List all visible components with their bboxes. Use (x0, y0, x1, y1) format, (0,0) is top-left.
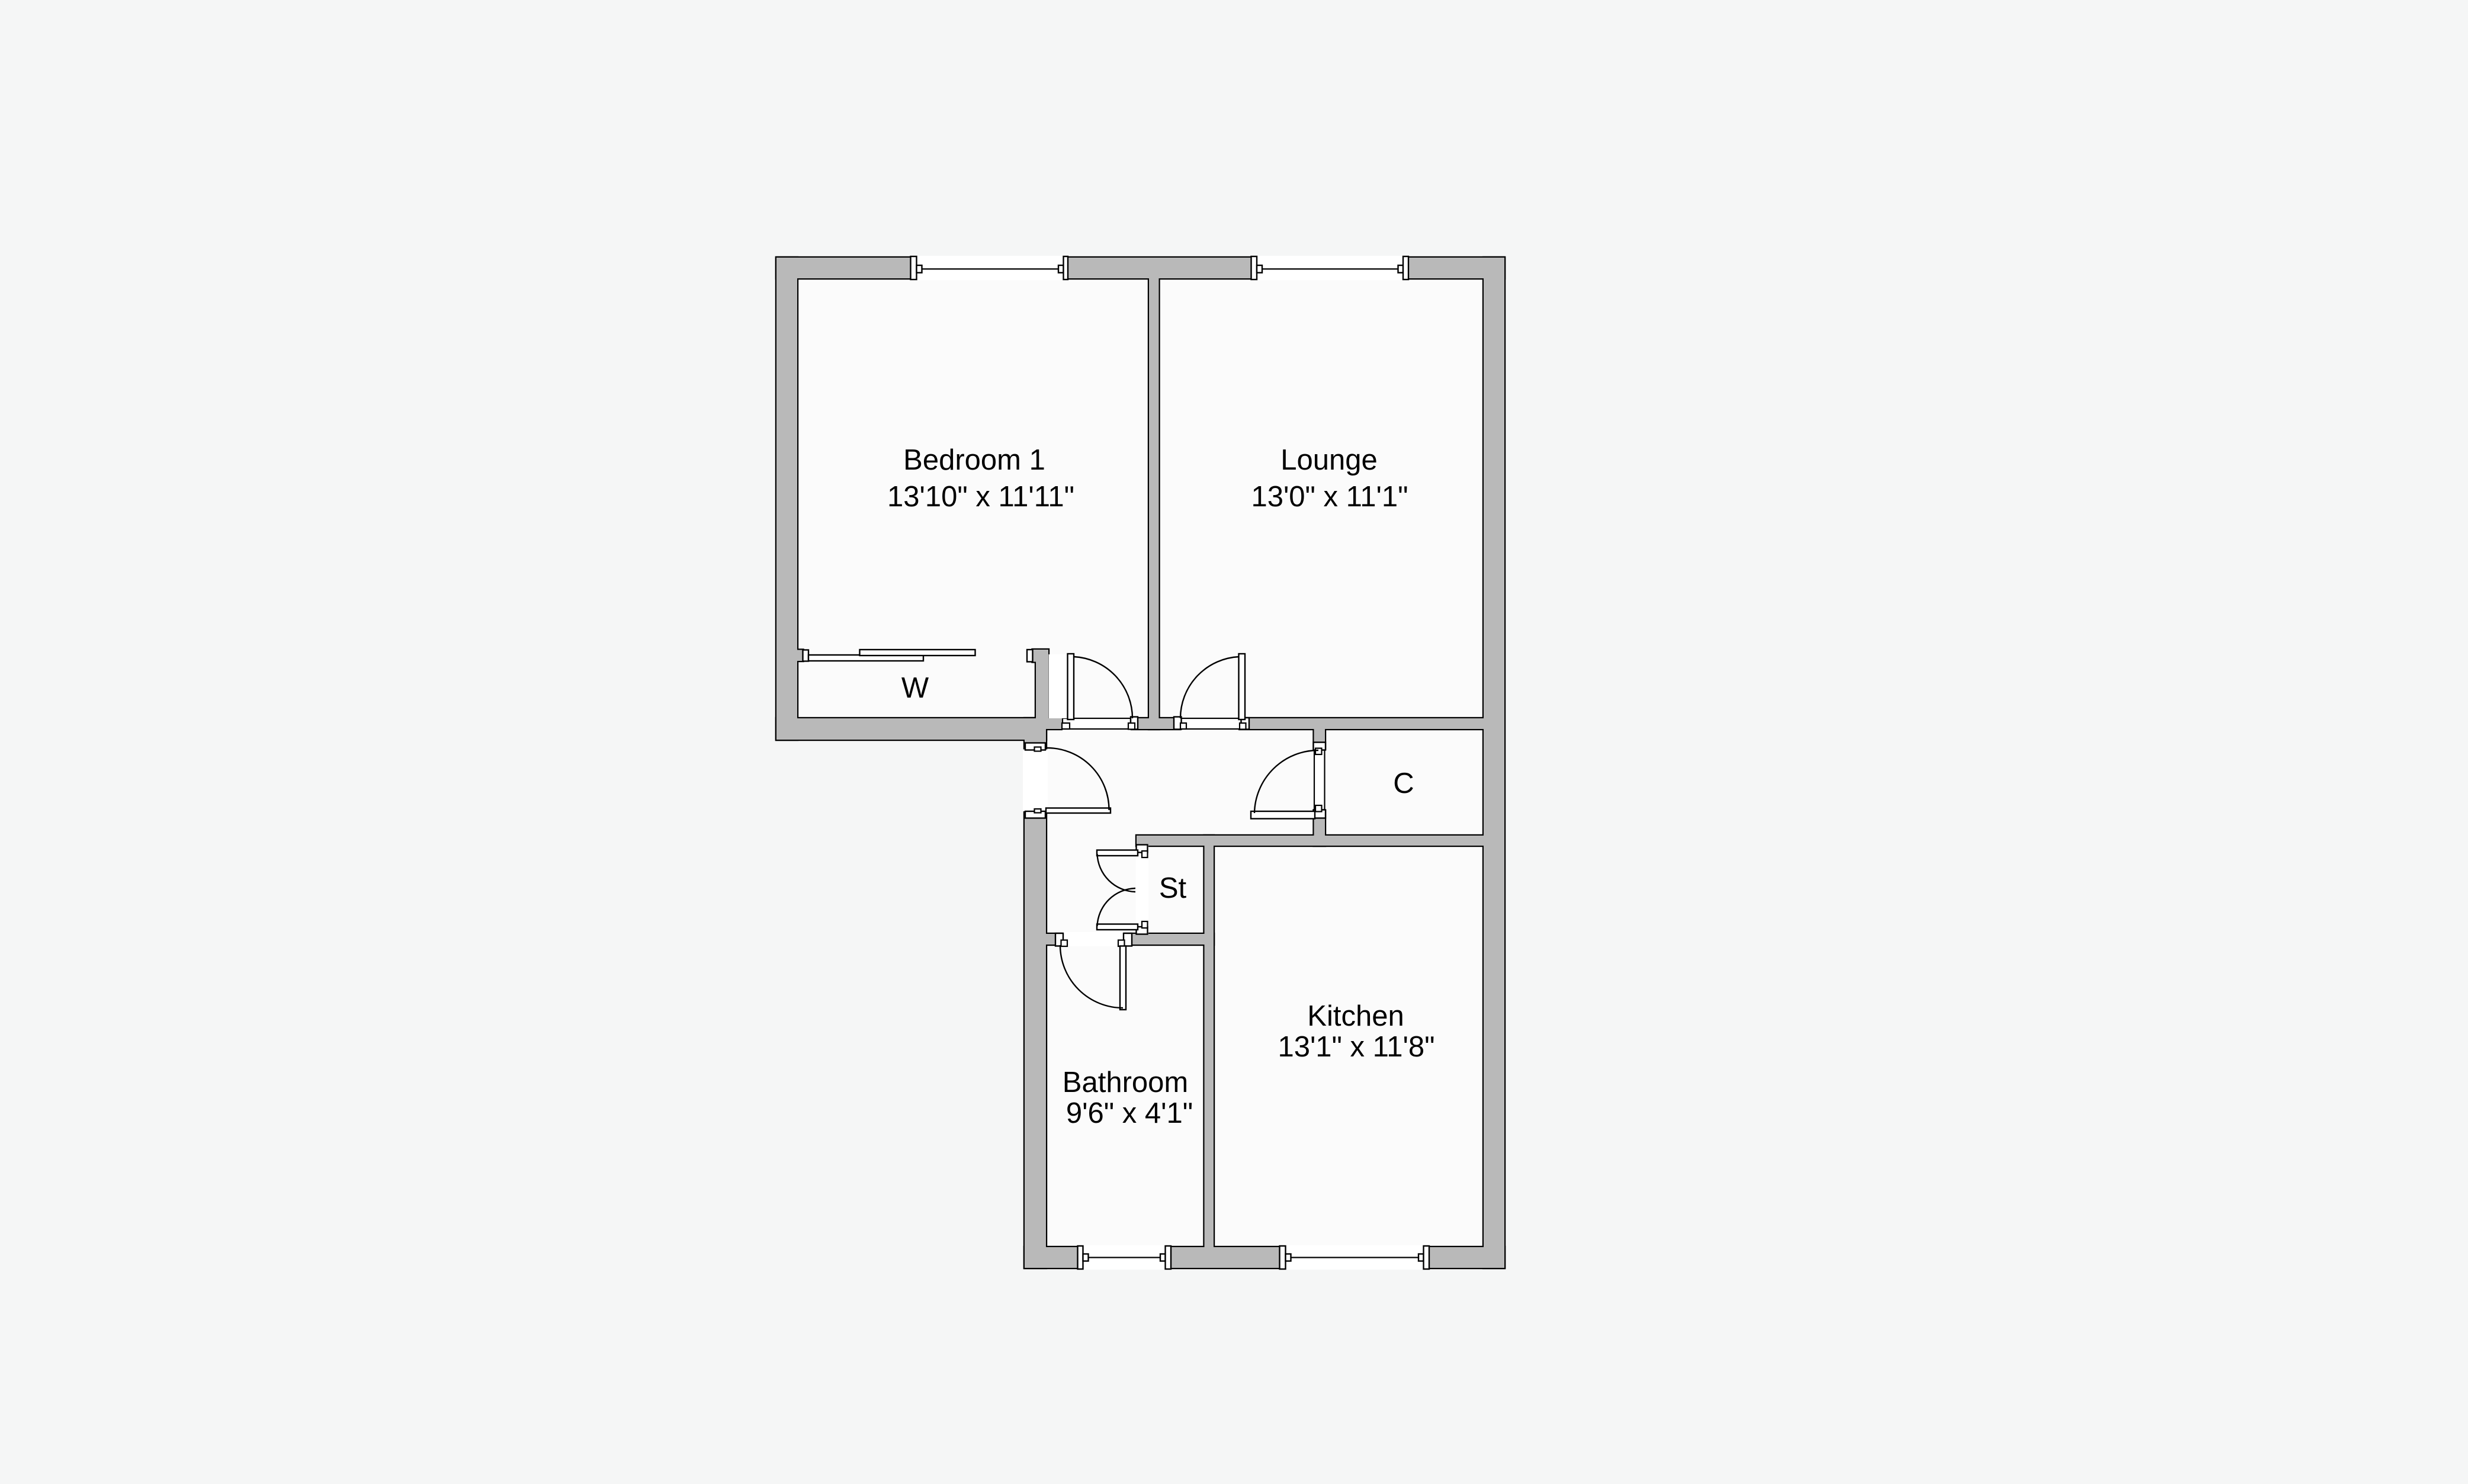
svg-text:St: St (1159, 872, 1187, 904)
svg-text:Bedroom 1: Bedroom 1 (903, 444, 1045, 476)
svg-text:Lounge: Lounge (1280, 444, 1378, 476)
svg-text:W: W (901, 672, 929, 704)
svg-text:Bathroom: Bathroom (1063, 1067, 1188, 1098)
svg-text:13'1" x 11'8": 13'1" x 11'8" (1278, 1031, 1434, 1063)
svg-text:9'6" x 4'1": 9'6" x 4'1" (1066, 1097, 1193, 1129)
svg-text:13'0" x 11'1": 13'0" x 11'1" (1251, 481, 1408, 513)
svg-text:C: C (1393, 767, 1414, 799)
svg-text:13'10" x 11'11": 13'10" x 11'11" (887, 481, 1074, 513)
svg-text:Kitchen: Kitchen (1307, 1000, 1404, 1032)
